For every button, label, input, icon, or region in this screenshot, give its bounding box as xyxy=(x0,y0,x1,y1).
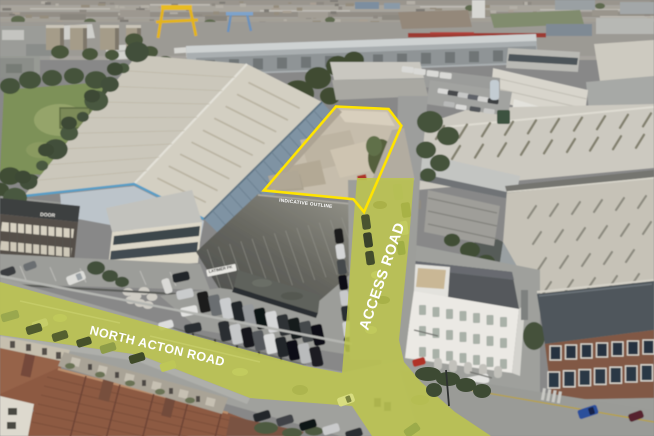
svg-text:DOOR: DOOR xyxy=(40,212,56,219)
